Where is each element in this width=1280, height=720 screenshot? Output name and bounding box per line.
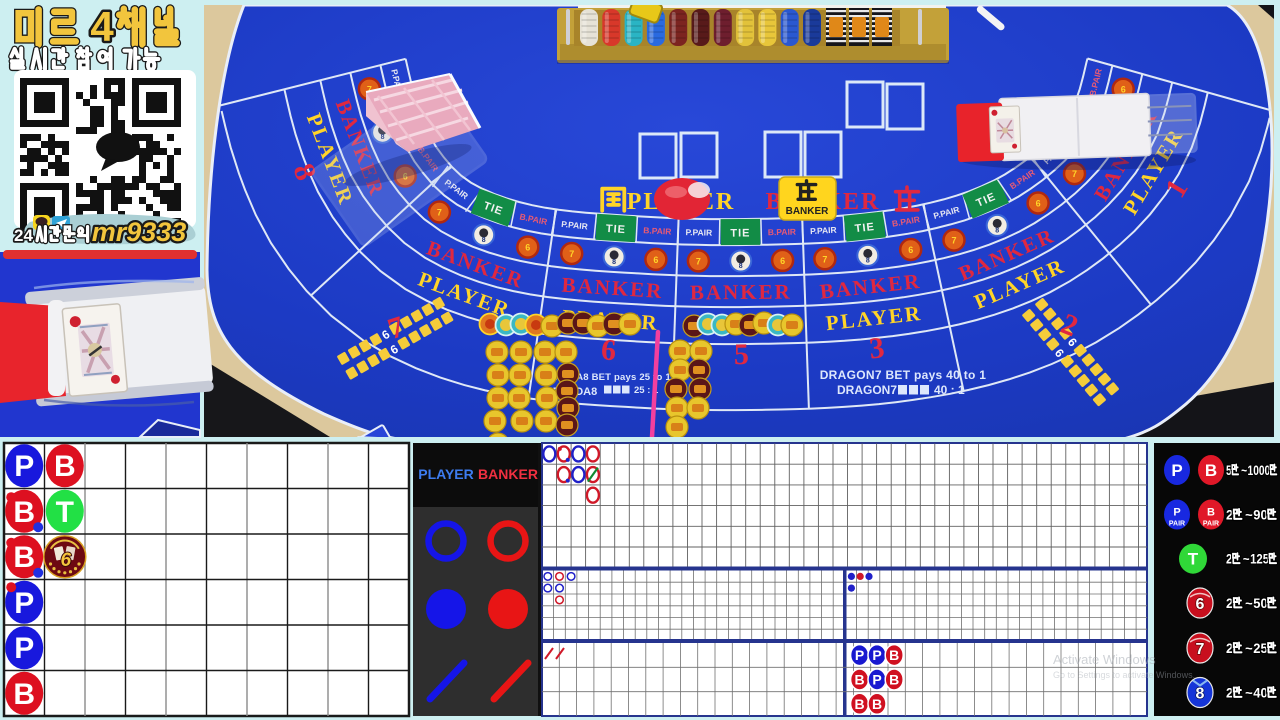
svg-text:6: 6 (653, 255, 658, 265)
svg-text:P: P (1173, 507, 1180, 519)
svg-text:6: 6 (1036, 199, 1041, 209)
svg-text:P: P (872, 672, 881, 688)
svg-text:P: P (14, 450, 34, 483)
svg-text:P: P (1171, 461, 1182, 480)
svg-text:8: 8 (866, 257, 870, 264)
svg-text:DRAGON7: DRAGON7 (837, 383, 897, 397)
svg-text:B: B (54, 450, 76, 483)
svg-text:7: 7 (822, 254, 827, 264)
svg-text:40 : 1: 40 : 1 (934, 383, 965, 397)
svg-text:24: 24 (14, 226, 33, 245)
svg-text:BANKER: BANKER (478, 466, 538, 482)
svg-text:B: B (13, 541, 35, 574)
svg-text:~: ~ (1245, 596, 1253, 611)
svg-text:B: B (872, 696, 882, 712)
svg-text:TIE: TIE (854, 221, 875, 235)
svg-text:6: 6 (1196, 596, 1205, 613)
svg-text:6: 6 (1121, 85, 1126, 95)
svg-text:TIE: TIE (605, 223, 626, 236)
svg-text:T: T (56, 496, 74, 529)
svg-text:7: 7 (951, 236, 956, 246)
svg-text:8: 8 (995, 227, 999, 234)
svg-text:B: B (889, 672, 899, 688)
svg-text:1000: 1000 (1248, 463, 1271, 479)
svg-text:P: P (14, 632, 34, 665)
svg-text:8: 8 (482, 237, 486, 244)
svg-text:P.PAIR: P.PAIR (685, 227, 712, 237)
svg-text:BANKER: BANKER (786, 206, 830, 217)
svg-text:~: ~ (1245, 685, 1253, 700)
svg-text:6: 6 (908, 245, 913, 255)
svg-text:4: 4 (90, 3, 114, 50)
svg-text:7: 7 (1196, 641, 1205, 658)
svg-text:7: 7 (1072, 169, 1077, 179)
svg-text:PLAYER: PLAYER (418, 466, 474, 482)
svg-text:B.PAIR: B.PAIR (643, 225, 672, 236)
svg-text:T: T (1188, 550, 1199, 569)
svg-text:BANKER: BANKER (690, 280, 792, 305)
svg-text:90: 90 (1253, 507, 1267, 522)
svg-text:B: B (855, 696, 865, 712)
svg-text:P: P (855, 647, 864, 663)
svg-text:Go to Settings to activate Win: Go to Settings to activate Windows. (1053, 670, 1195, 680)
svg-text:8: 8 (1196, 686, 1205, 703)
svg-text:6: 6 (600, 333, 617, 367)
svg-text:7: 7 (437, 208, 442, 218)
svg-text:25: 25 (1253, 641, 1267, 656)
svg-text:5: 5 (734, 338, 749, 371)
svg-text:P: P (14, 587, 34, 620)
svg-text:DRAGON7 BET pays 40 to 1: DRAGON7 BET pays 40 to 1 (820, 368, 987, 382)
svg-text:Activate Windows: Activate Windows (1053, 652, 1156, 667)
svg-text:~: ~ (1245, 641, 1253, 656)
svg-text:P.PAIR: P.PAIR (810, 225, 837, 236)
svg-text:~: ~ (1243, 552, 1250, 567)
svg-text:7: 7 (696, 256, 701, 266)
svg-text:~: ~ (1245, 507, 1253, 522)
svg-text:8: 8 (612, 259, 616, 266)
svg-text:PAIR: PAIR (1169, 521, 1185, 528)
svg-text:B: B (13, 678, 35, 711)
svg-text:B: B (1205, 461, 1217, 480)
svg-text:50: 50 (1253, 596, 1267, 611)
svg-text:mr9333: mr9333 (92, 217, 187, 247)
svg-text:B.PAIR: B.PAIR (768, 227, 796, 238)
svg-text:125: 125 (1250, 552, 1269, 567)
svg-text:PAIR: PAIR (1203, 521, 1219, 528)
svg-text:P: P (872, 647, 881, 663)
svg-text:B: B (855, 672, 865, 688)
svg-text:6: 6 (780, 256, 785, 266)
svg-text:6: 6 (525, 243, 530, 253)
svg-text:6: 6 (61, 550, 72, 571)
svg-text:40: 40 (1253, 685, 1267, 700)
svg-text:B: B (1207, 507, 1215, 519)
svg-text:8: 8 (739, 263, 743, 270)
svg-text:TIE: TIE (730, 227, 750, 239)
svg-text:~: ~ (1241, 463, 1247, 479)
svg-text:B: B (13, 496, 35, 529)
svg-text:7: 7 (569, 249, 574, 259)
svg-text:B: B (889, 647, 899, 663)
